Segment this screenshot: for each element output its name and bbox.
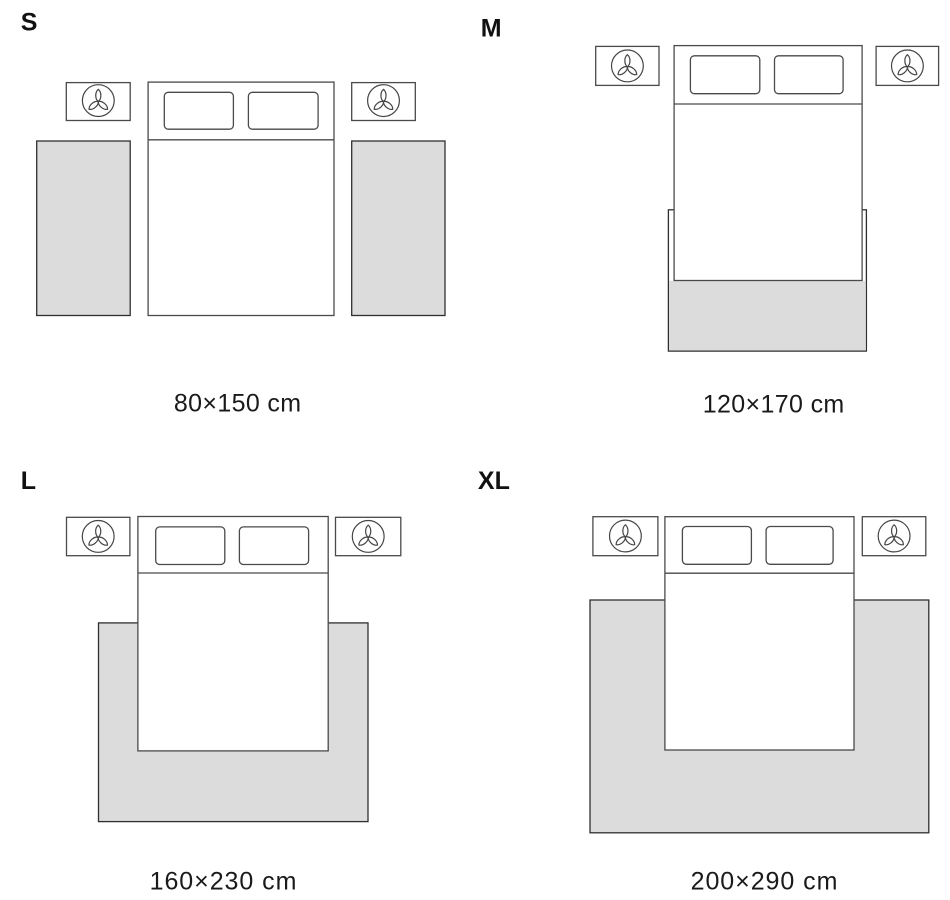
svg-text:160×230 cm: 160×230 cm xyxy=(150,867,298,895)
svg-text:120×170 cm: 120×170 cm xyxy=(703,390,845,418)
svg-text:S: S xyxy=(21,8,38,36)
svg-text:M: M xyxy=(481,14,502,42)
svg-text:200×290 cm: 200×290 cm xyxy=(691,867,839,895)
svg-text:L: L xyxy=(21,467,36,495)
svg-text:XL: XL xyxy=(478,467,510,495)
svg-text:80×150 cm: 80×150 cm xyxy=(174,389,302,417)
